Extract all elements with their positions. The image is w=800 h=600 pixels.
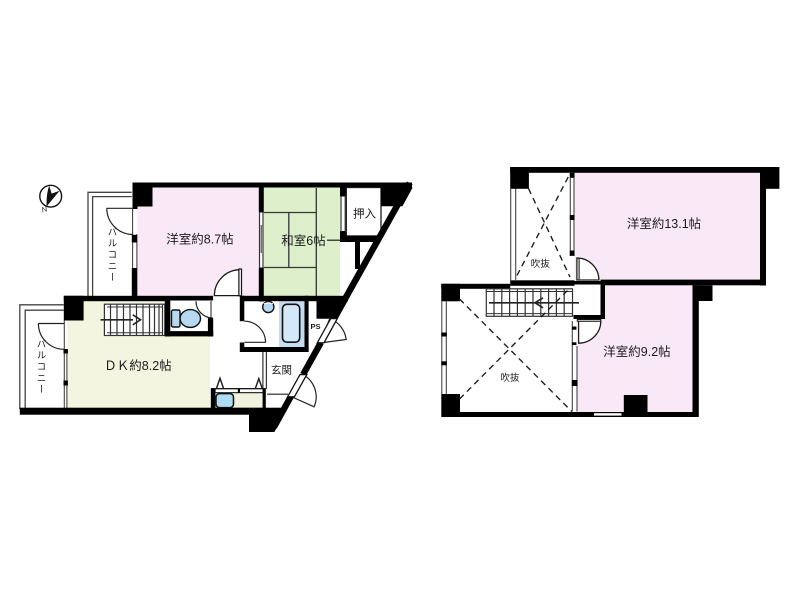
svg-text:洋室約13.1帖: 洋室約13.1帖 xyxy=(627,216,701,231)
svg-text:バルコニー: バルコニー xyxy=(35,339,47,396)
svg-text:押入: 押入 xyxy=(353,207,376,221)
svg-text:洋室約8.7帖: 洋室約8.7帖 xyxy=(166,232,233,247)
svg-text:和室6帖: 和室6帖 xyxy=(281,233,325,248)
svg-text:PS: PS xyxy=(310,322,320,331)
svg-text:洋室約9.2帖: 洋室約9.2帖 xyxy=(603,344,670,359)
svg-text:玄関: 玄関 xyxy=(271,364,292,377)
svg-text:ＤＫ約8.2帖: ＤＫ約8.2帖 xyxy=(104,358,171,373)
svg-text:吹抜: 吹抜 xyxy=(500,372,520,384)
svg-text:吹抜: 吹抜 xyxy=(531,258,551,270)
svg-text:N: N xyxy=(40,204,48,214)
svg-text:バルコニー: バルコニー xyxy=(106,227,118,284)
